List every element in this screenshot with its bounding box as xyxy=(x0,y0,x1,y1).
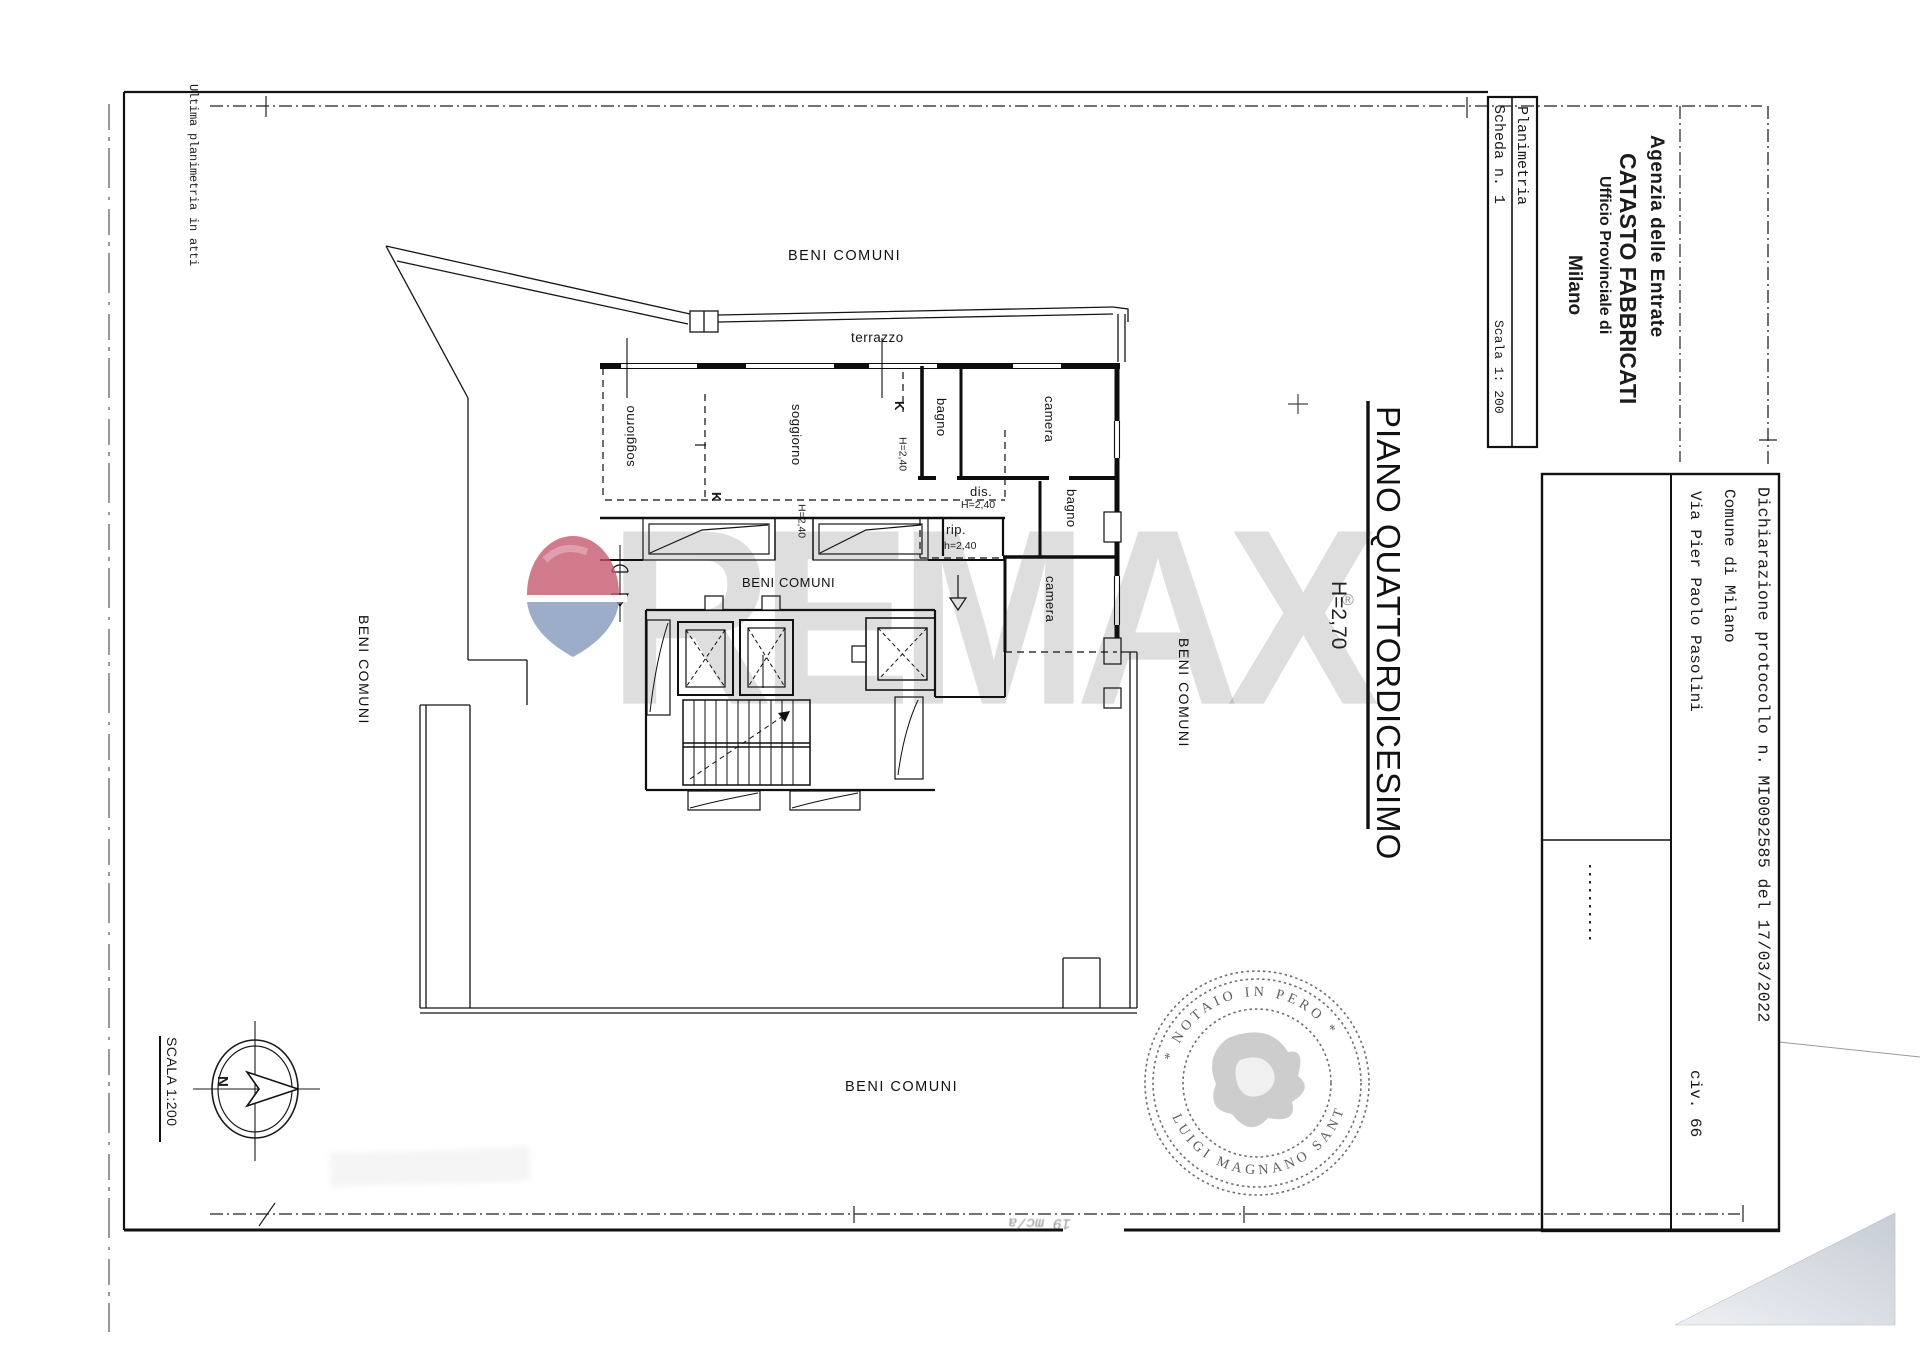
notary-stamp: * NOTAIO IN PERO * LUIGI MAGNANO SANT xyxy=(1145,971,1369,1195)
remax-watermark-letters: REMAX xyxy=(608,492,1366,742)
label-beni-comuni-left: BENI COMUNI xyxy=(357,615,371,725)
declaration-civic-number: civ. 66 xyxy=(1687,1070,1703,1137)
label-camera-1: camera xyxy=(1043,396,1056,442)
label-bagno-1: bagno xyxy=(935,398,948,437)
label-bagno-2: bagno xyxy=(1065,489,1078,528)
label-h240-rip: h=2,40 xyxy=(944,540,976,552)
agency-name: Agenzia delle Entrate xyxy=(1647,135,1666,338)
label-h240-vertical-1: H=2,40 xyxy=(897,437,908,471)
floor-height-note: H=2,70 xyxy=(1328,581,1349,649)
compass-rose xyxy=(193,1021,320,1161)
sheet-scale: Scala 1: 200 xyxy=(1492,320,1505,414)
sheet-number: Scheda n. 1 xyxy=(1491,105,1506,204)
label-h240-vertical-2: H=2,40 xyxy=(796,504,807,538)
label-section-k-top: K xyxy=(893,401,906,411)
label-beni-comuni-bottom: BENI COMUNI xyxy=(845,1079,958,1095)
agency-registry: CATASTO FABBRICATI xyxy=(1616,153,1639,404)
label-beni-comuni-top: BENI COMUNI xyxy=(788,248,901,264)
compass-north-label: N xyxy=(215,1076,230,1087)
label-soggiorno-left: soggiorno xyxy=(623,405,636,467)
declaration-municipality: Comune di Milano xyxy=(1721,489,1737,643)
declaration-street: Via Pier Paolo Pasolini xyxy=(1687,491,1703,712)
pencil-smudge xyxy=(329,1147,530,1188)
floor-title: PIANO QUATTORDICESIMO xyxy=(1372,406,1405,860)
label-rip: rip. xyxy=(946,522,966,537)
label-beni-comuni-core: BENI COMUNI xyxy=(742,575,835,590)
label-camera-2: camera xyxy=(1044,576,1057,622)
label-terrazzo: terrazzo xyxy=(851,330,904,345)
label-soggiorno-center: soggiorno xyxy=(790,404,803,466)
label-h240-dis: H=2,40 xyxy=(961,499,995,511)
label-section-k-left: K xyxy=(710,492,723,502)
agency-office: Ufficio Provinciale di xyxy=(1596,176,1612,334)
sheet-doc-type: Planimetria xyxy=(1514,106,1529,205)
compass-scale-label: SCALA 1:200 xyxy=(165,1037,179,1127)
label-beni-comuni-right: BENI COMUNI xyxy=(1177,638,1191,748)
declaration-protocol: Dichiarazione protocollo n. MI0092585 de… xyxy=(1754,487,1771,1023)
label-dis: dis. xyxy=(970,484,992,499)
agency-city: Milano xyxy=(1565,255,1584,315)
scanned-cadastral-plan-page: * NOTAIO IN PERO * LUIGI MAGNANO SANT RE… xyxy=(0,0,1920,1358)
margin-note-ultima-planimetria: Ultima planimetria in atti xyxy=(187,84,199,266)
remax-balloon-icon xyxy=(515,530,635,670)
handwritten-note: 19 mc/a xyxy=(1008,1213,1071,1231)
